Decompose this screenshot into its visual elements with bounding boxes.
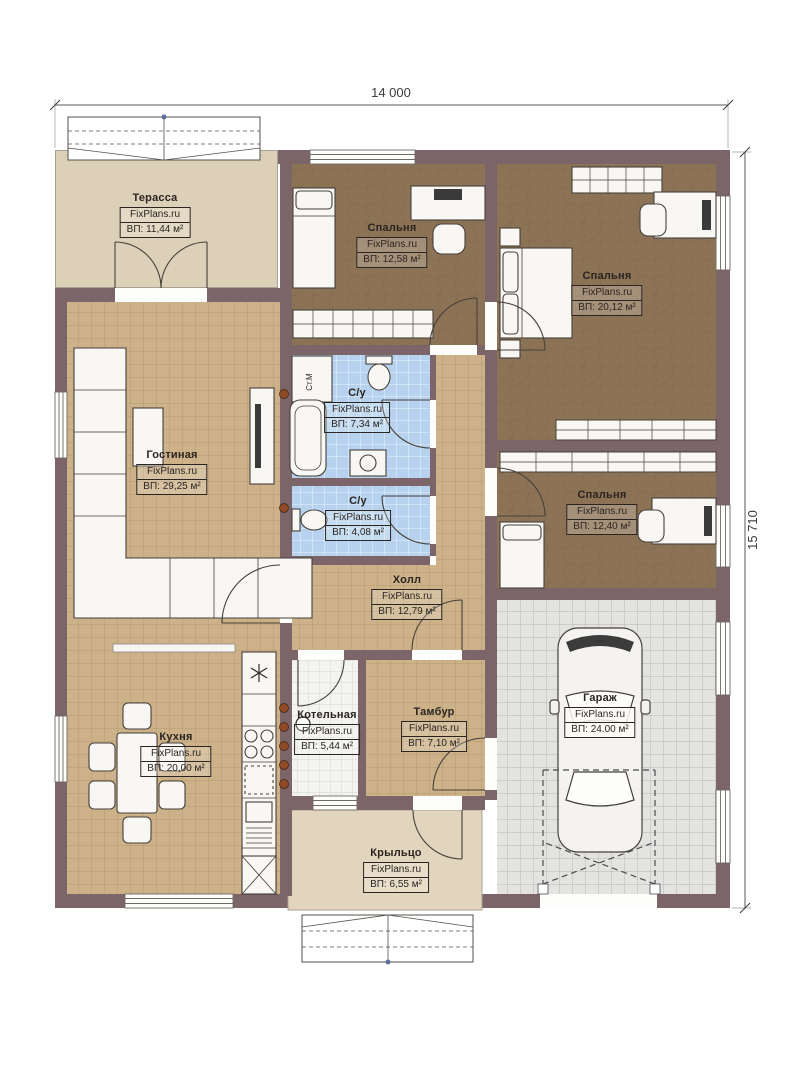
office-chair: [433, 224, 465, 254]
room-area: ВП: 7,10 м²: [402, 737, 466, 751]
window: [716, 196, 730, 270]
room-area: ВП: 4,08 м²: [326, 526, 390, 540]
room-name: Гараж: [564, 692, 635, 705]
brand-label: FixPlans.ru: [295, 725, 359, 740]
brand-label: FixPlans.ru: [372, 590, 441, 605]
room-area: ВП: 12,40 м²: [567, 520, 636, 534]
room-name: Кухня: [140, 731, 211, 744]
room-info-box: FixPlans.ru ВП: 29,25 м²: [136, 464, 207, 495]
gate-post: [650, 884, 660, 894]
window: [55, 392, 67, 458]
room-name: Холл: [371, 574, 442, 587]
room-area: ВП: 12,58 м²: [357, 253, 426, 267]
ceiling-beam: [113, 644, 235, 652]
window: [716, 505, 730, 567]
pillow: [503, 294, 518, 334]
room-info-box: FixPlans.ru ВП: 5,44 м²: [294, 724, 360, 755]
window: [716, 790, 730, 863]
window: [55, 716, 67, 782]
tv: [255, 404, 261, 468]
room-label-terrace: Терасса FixPlans.ru ВП: 11,44 м²: [120, 192, 191, 238]
monitor: [702, 200, 711, 230]
room-info-box: FixPlans.ru ВП: 20,12 м²: [571, 285, 642, 316]
room-name: С/у: [324, 387, 390, 400]
room-area: ВП: 11,44 м²: [121, 223, 190, 237]
brand-label: FixPlans.ru: [137, 465, 206, 480]
office-chair: [638, 510, 664, 542]
room-label-vestibule: Тамбур FixPlans.ru ВП: 7,10 м²: [401, 706, 467, 752]
corner-cabinet: [242, 856, 276, 894]
brand-label: FixPlans.ru: [567, 505, 636, 520]
room-area: ВП: 29,25 м²: [137, 480, 206, 494]
side-mirror: [550, 700, 559, 714]
room-name: С/у: [325, 495, 391, 508]
wardrobe: [293, 310, 433, 338]
brand-label: FixPlans.ru: [325, 403, 389, 418]
room-info-box: FixPlans.ru ВП: 12,79 м²: [371, 589, 442, 620]
room-name: Спальня: [566, 489, 637, 502]
chair: [159, 781, 185, 809]
terrace-steps: [68, 115, 260, 161]
nightstand: [500, 228, 520, 246]
dimension-width-label: 14 000: [371, 85, 411, 100]
chair: [89, 781, 115, 809]
floor-plan-canvas: Ст.М 14 000 15 710: [0, 0, 792, 1080]
wardrobe: [572, 167, 662, 193]
room-name: Крыльцо: [363, 847, 429, 860]
room-name: Терасса: [120, 192, 191, 205]
room-name: Гостиная: [136, 449, 207, 462]
tv-stand: [250, 388, 274, 484]
dimension-right: 15 710: [732, 147, 760, 913]
room-label-bedroom-right-middle: Спальня FixPlans.ru ВП: 12,40 м²: [566, 489, 637, 535]
room-label-bedroom-right-top: Спальня FixPlans.ru ВП: 20,12 м²: [571, 270, 642, 316]
room-area: ВП: 24.00 м²: [565, 723, 634, 737]
room-info-box: FixPlans.ru ВП: 24.00 м²: [564, 707, 635, 738]
brand-label: FixPlans.ru: [121, 208, 190, 223]
window: [125, 894, 233, 908]
room-area: ВП: 7,34 м²: [325, 418, 389, 432]
side-mirror: [641, 700, 650, 714]
monitor: [434, 189, 462, 200]
room-info-box: FixPlans.ru ВП: 12,40 м²: [566, 504, 637, 535]
room-info-box: FixPlans.ru ВП: 12,58 м²: [356, 237, 427, 268]
room-info-box: FixPlans.ru ВП: 7,10 м²: [401, 721, 467, 752]
room-label-kitchen: Кухня FixPlans.ru ВП: 20,00 м²: [140, 731, 211, 777]
brand-label: FixPlans.ru: [572, 286, 641, 301]
room-area: ВП: 12,79 м²: [372, 605, 441, 619]
washing-machine-label: Ст.М: [305, 373, 314, 391]
room-label-living-room: Гостиная FixPlans.ru ВП: 29,25 м²: [136, 449, 207, 495]
room-name: Спальня: [571, 270, 642, 283]
brand-label: FixPlans.ru: [402, 722, 466, 737]
chair: [123, 703, 151, 729]
room-label-bathroom-small: С/у FixPlans.ru ВП: 4,08 м²: [325, 495, 391, 541]
toilet: [292, 509, 327, 531]
office-chair: [640, 204, 666, 236]
car-top-view: [550, 628, 650, 852]
room-name: Спальня: [356, 222, 427, 235]
brand-label: FixPlans.ru: [141, 747, 210, 762]
floor-plan-page: Ст.М 14 000 15 710 Терасса FixPlans.ru В…: [0, 0, 792, 1080]
bathroom-small-fixtures: [292, 509, 327, 531]
pillow: [503, 252, 518, 292]
room-area: ВП: 20,00 м²: [141, 762, 210, 776]
room-info-box: FixPlans.ru ВП: 4,08 м²: [325, 510, 391, 541]
room-label-boiler-room: Котельная FixPlans.ru ВП: 5,44 м²: [294, 709, 360, 755]
toilet: [366, 356, 392, 390]
room-name: Котельная: [294, 709, 360, 722]
brand-label: FixPlans.ru: [565, 708, 634, 723]
chair: [89, 743, 115, 771]
room-name: Тамбур: [401, 706, 467, 719]
chair: [123, 817, 151, 843]
room-area: ВП: 5,44 м²: [295, 740, 359, 754]
room-info-box: FixPlans.ru ВП: 6,55 м²: [363, 862, 429, 893]
hall-corridor-floor: [436, 355, 485, 650]
garage-gate-opening: [540, 894, 657, 908]
room-info-box: FixPlans.ru ВП: 7,34 м²: [324, 402, 390, 433]
room-label-porch: Крыльцо FixPlans.ru ВП: 6,55 м²: [363, 847, 429, 893]
room-info-box: FixPlans.ru ВП: 11,44 м²: [120, 207, 191, 238]
dimension-height-label: 15 710: [745, 510, 760, 550]
gate-post: [538, 884, 548, 894]
vanity-sink: [350, 450, 386, 476]
porch-steps: [302, 915, 473, 965]
room-label-hall: Холл FixPlans.ru ВП: 12,79 м²: [371, 574, 442, 620]
brand-label: FixPlans.ru: [364, 863, 428, 878]
room-area: ВП: 20,12 м²: [572, 301, 641, 315]
room-info-box: FixPlans.ru ВП: 20,00 м²: [140, 746, 211, 777]
brand-label: FixPlans.ru: [357, 238, 426, 253]
room-area: ВП: 6,55 м²: [364, 878, 428, 892]
window: [313, 796, 357, 810]
nightstand: [500, 340, 520, 358]
room-label-bedroom-top: Спальня FixPlans.ru ВП: 12,58 м²: [356, 222, 427, 268]
window: [310, 150, 415, 164]
pillow: [503, 525, 541, 540]
brand-label: FixPlans.ru: [326, 511, 390, 526]
monitor: [704, 506, 712, 536]
window: [716, 622, 730, 695]
room-label-bathroom-large: С/у FixPlans.ru ВП: 7,34 м²: [324, 387, 390, 433]
room-label-garage: Гараж FixPlans.ru ВП: 24.00 м²: [564, 692, 635, 738]
bathtub: [290, 400, 326, 476]
pillow: [296, 191, 332, 209]
